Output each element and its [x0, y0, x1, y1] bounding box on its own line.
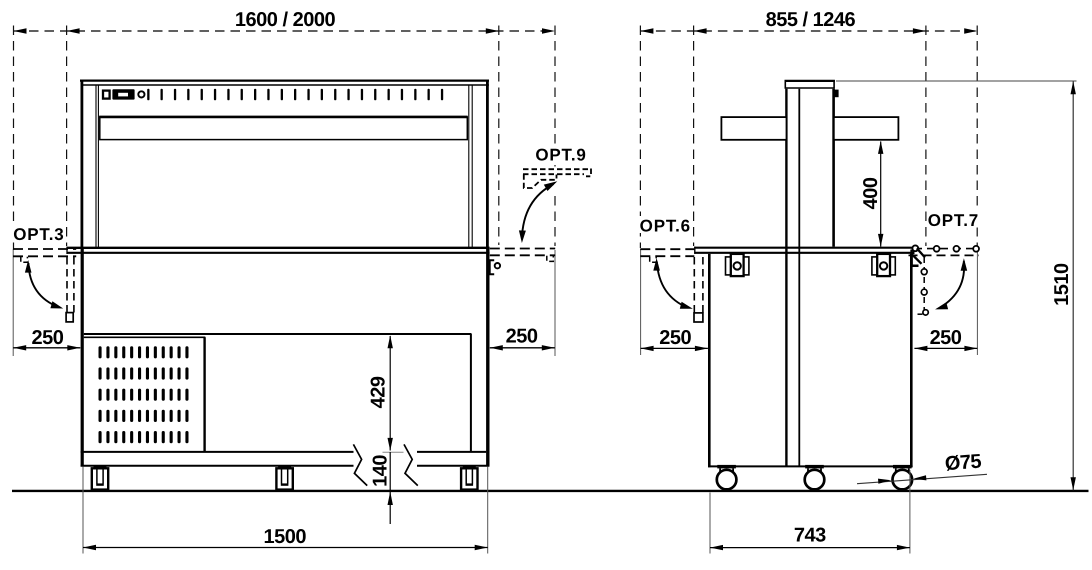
svg-text:1600 / 2000: 1600 / 2000: [235, 9, 336, 31]
svg-text:1510: 1510: [1051, 263, 1073, 306]
svg-text:250: 250: [506, 325, 538, 347]
svg-text:855 / 1246: 855 / 1246: [766, 9, 856, 31]
svg-text:1500: 1500: [264, 526, 307, 548]
svg-text:743: 743: [794, 524, 826, 546]
svg-text:OPT.3: OPT.3: [13, 225, 64, 244]
svg-text:140: 140: [369, 455, 391, 487]
svg-text:OPT.9: OPT.9: [535, 146, 586, 165]
svg-text:OPT.7: OPT.7: [928, 211, 979, 230]
svg-text:429: 429: [368, 376, 390, 408]
svg-text:250: 250: [659, 327, 691, 349]
svg-text:250: 250: [31, 327, 63, 349]
svg-text:OPT.6: OPT.6: [640, 217, 691, 236]
svg-text:400: 400: [860, 177, 882, 209]
svg-text:Ø75: Ø75: [944, 451, 982, 476]
svg-text:250: 250: [930, 327, 962, 349]
